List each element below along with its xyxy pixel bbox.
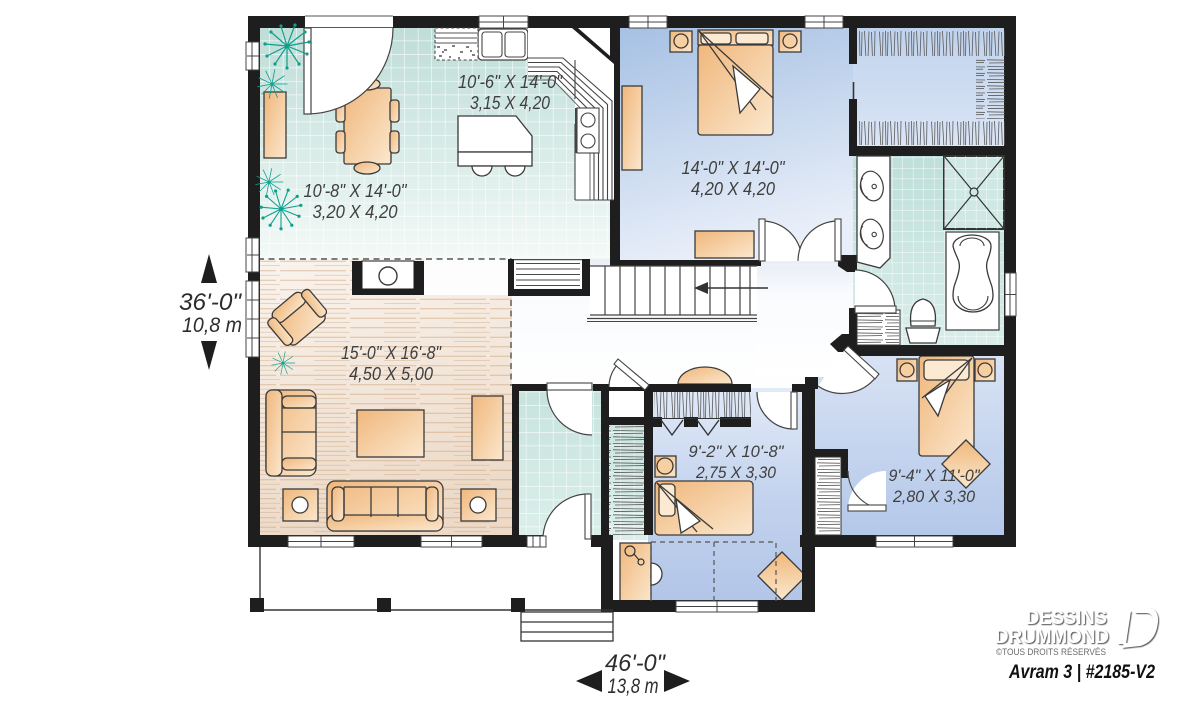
- svg-text:46'-0": 46'-0": [605, 650, 666, 677]
- svg-text:36'-0": 36'-0": [179, 289, 242, 316]
- svg-text:Avram 3 | #2185-V2: Avram 3 | #2185-V2: [1008, 662, 1155, 683]
- svg-text:9'-4" X 11'-0": 9'-4" X 11'-0": [889, 467, 981, 485]
- svg-text:3,20 X 4,20: 3,20 X 4,20: [313, 202, 398, 222]
- svg-text:DRUMMOND: DRUMMOND: [995, 627, 1109, 648]
- svg-text:14'-0" X 14'-0": 14'-0" X 14'-0": [682, 158, 786, 178]
- svg-text:15'-0" X 16'-8": 15'-0" X 16'-8": [341, 343, 442, 363]
- svg-text:9'-2" X 10'-8": 9'-2" X 10'-8": [689, 443, 785, 461]
- svg-text:©TOUS DROITS RÉSERVÉS: ©TOUS DROITS RÉSERVÉS: [996, 647, 1106, 657]
- svg-text:13,8 m: 13,8 m: [608, 675, 659, 698]
- svg-text:2,75 X 3,30: 2,75 X 3,30: [695, 464, 777, 482]
- svg-text:4,20 X 4,20: 4,20 X 4,20: [691, 179, 775, 199]
- svg-text:4,50 X 5,00: 4,50 X 5,00: [349, 364, 433, 384]
- svg-text:3,15 X 4,20: 3,15 X 4,20: [470, 93, 550, 113]
- svg-text:DESSINS: DESSINS: [1026, 608, 1107, 629]
- svg-text:10'-8" X 14'-0": 10'-8" X 14'-0": [304, 181, 408, 201]
- svg-text:10,8 m: 10,8 m: [182, 314, 242, 337]
- svg-text:2,80 X 3,30: 2,80 X 3,30: [892, 488, 976, 506]
- svg-text:10'-6" X 14'-0": 10'-6" X 14'-0": [458, 72, 563, 92]
